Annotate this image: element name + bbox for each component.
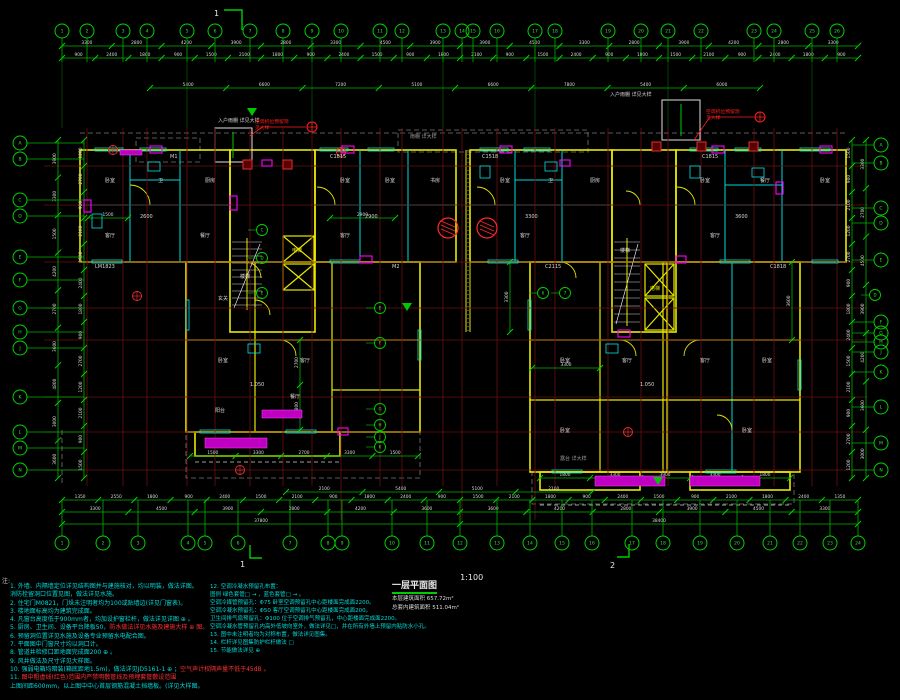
note-segment: 1. xyxy=(10,583,16,590)
grid-bubble-label: 11 xyxy=(424,541,430,547)
note-segment: 楼地面标高均为建筑完成面。 xyxy=(18,608,96,615)
note-segment: 6. xyxy=(10,633,16,640)
dim-value: 4500 xyxy=(380,40,391,46)
grid-bubble-label: 4 xyxy=(187,541,190,547)
plan-label: 客厅 xyxy=(700,357,710,364)
plan-label: C1815 xyxy=(330,154,346,160)
plan-label: 卧室 xyxy=(820,177,830,184)
grid-bubble-label: 5 xyxy=(186,29,189,35)
note-segment: 节能做法详见 ⊕ xyxy=(221,648,260,654)
note-segment: 12. xyxy=(210,584,219,590)
dim-value: 2100 xyxy=(319,486,330,492)
dim-value: 37800 xyxy=(254,518,268,524)
plan-label: 电梯 xyxy=(650,285,660,292)
annotation-text: 见大样 xyxy=(706,114,721,121)
note-segment: 平面图中门窗尺寸均以洞口计。 xyxy=(18,641,102,648)
dim-value: 4200 xyxy=(728,40,739,46)
note-segment: 风井做法及尺寸详见大样图。 xyxy=(18,658,96,665)
walls-exterior xyxy=(80,150,846,490)
plan-label: 卧室 xyxy=(560,427,570,434)
note-segment: 消防栓留洞口位置见图，做法详见水施。 xyxy=(10,591,118,598)
note-segment: 凡窗台高度低于900mm者，均加设护窗栏杆，做法详见详图 ⊕ 。 xyxy=(18,616,194,623)
note-segment: 5. xyxy=(10,624,16,631)
grid-bubble-label: 6 xyxy=(214,29,217,35)
level-triangle xyxy=(247,108,257,116)
area-line-2: 总套内建筑面积 511.04m² xyxy=(392,605,483,612)
dim-value: 2400 xyxy=(106,52,117,58)
grid-bubble-label: 14 xyxy=(527,541,533,547)
grid-bubble-label: 24 xyxy=(771,29,777,35)
dim-value: 6600 xyxy=(488,82,499,88)
note-line: 图例 绿色套管□ → ，蓝色套管□ → 。 xyxy=(210,591,540,599)
grid-bubble-label: 16 xyxy=(494,29,500,35)
grid-bubble-label: 22 xyxy=(698,29,704,35)
plan-label: 阳台 xyxy=(215,407,225,414)
window-marks xyxy=(92,148,838,473)
dim-value: 1500 xyxy=(103,212,114,218)
plan-label: 卫 xyxy=(548,178,553,184)
plan-label: 客厅 xyxy=(340,232,350,239)
plan-label: 卧室 xyxy=(105,177,115,184)
dim-value: 2400 xyxy=(770,52,781,58)
note-segment: 空调冷凝水预留孔布置： xyxy=(221,584,282,590)
plan-label: 楼梯 xyxy=(620,247,630,254)
plan-label: 3600 xyxy=(735,214,748,220)
area-line-1: 本层建筑面积 657.72m² xyxy=(392,596,483,603)
grid-bubble-label: 10 xyxy=(389,541,395,547)
note-segment: 住宅门M0821，门垛未注明者均为100或贴墙边(详见门窗表)。 xyxy=(18,600,187,607)
general-notes-right: 12.空调冷凝水预留孔布置：图例 绿色套管□ → ，蓝色套管□ → 。空调冷媒管… xyxy=(210,583,540,655)
note-segment: 8. xyxy=(10,649,16,656)
plan-label: 入户雨棚 详见大样 xyxy=(218,117,260,124)
dim-value: 3600 xyxy=(786,295,792,306)
grid-bubble-label: K xyxy=(880,370,884,376)
dim-value: 1500 xyxy=(256,494,267,500)
red-annotations: 空调机位预留洞见大样空调机位预留洞见大样 xyxy=(250,108,765,140)
dim-value: 3900 xyxy=(430,40,441,46)
plan-label: 卧室 xyxy=(560,357,570,364)
dim-value: 900 xyxy=(438,494,446,500)
dim-value: 3600 xyxy=(860,400,866,411)
drawing-title: 一层平面图 xyxy=(392,578,437,594)
grid-bubble-label: 15 xyxy=(470,29,476,35)
fixture xyxy=(148,162,160,171)
grid-bubble-label: 10 xyxy=(338,29,344,35)
plan-label: 餐厅 xyxy=(200,232,210,239)
elevator-right xyxy=(645,264,674,330)
plan-label: 电梯 xyxy=(292,247,302,254)
note-line: 11.图中粗虚线(红色)范围内严禁明敷管线及预埋套管敷设范围 xyxy=(10,674,208,682)
plan-label: 厨房 xyxy=(590,177,600,184)
grid-bubble-label: 16 xyxy=(589,541,595,547)
dim-value: 2550 xyxy=(111,494,122,500)
note-segment: 空调冷媒管预留孔：Φ75 卧室空调预留孔中心距楼面完成面2200。 xyxy=(210,600,375,606)
grid-bubble-label: 7 xyxy=(289,541,292,547)
dim-value: 3300 xyxy=(330,40,341,46)
grid-bubble-label: 12 xyxy=(399,29,405,35)
dim-value: 1500 xyxy=(670,52,681,58)
plan-label: M1 xyxy=(170,154,178,160)
grid-bubble-label: 12 xyxy=(457,541,463,547)
dim-value: 3900 xyxy=(860,303,866,314)
dim-value: 2100 xyxy=(548,486,559,492)
dim-value: 3900 xyxy=(231,40,242,46)
cad-viewport[interactable]: 1 1 2 3300280042003900280033004500390039… xyxy=(0,0,900,700)
note-segment: 强弱电箱均暗装(箱底距地1.5m)，做法详见JD5161-1 ⊕ ； xyxy=(22,666,181,673)
dim-value: 2100 xyxy=(703,52,714,58)
dim-value: 7800 xyxy=(564,82,575,88)
note-segment: 空气声计权隔声量不低于45dB 。 xyxy=(180,666,269,673)
section-label-top: 1 xyxy=(214,9,219,18)
grid-bubbles-right: ABCDEFGHJKLMN xyxy=(852,138,888,477)
plan-labels: 卧室卫厨房客厅餐厅卧室卧室书房客厅卧室卫厨房客厅卧室餐厅卧室客厅玄关卧室客厅餐厅… xyxy=(95,91,830,462)
dim-value: 1800 xyxy=(637,52,648,58)
plan-label: 楼梯 xyxy=(240,273,250,280)
dim-value: 3000 xyxy=(860,448,866,459)
grid-bubble-label: A xyxy=(18,141,22,147)
dim-value: 2800 xyxy=(280,40,291,46)
dim-value: 2700 xyxy=(52,303,58,314)
grid-bubble-label: A xyxy=(879,143,883,149)
note-segment: 11. xyxy=(10,674,20,681)
annotation-text: 空调机位预留洞 xyxy=(255,118,289,125)
fixture xyxy=(690,166,700,178)
dim-value: 1800 xyxy=(762,494,773,500)
dim-value: 4500 xyxy=(860,255,866,266)
plan-label: 雨棚 详大样 xyxy=(410,133,437,140)
grid-bubble-label: 17 xyxy=(532,29,538,35)
grid-bubble-label: 6 xyxy=(237,541,240,547)
magenta-openings xyxy=(84,146,832,486)
balcony-sill xyxy=(205,438,267,448)
dim-value: 900 xyxy=(406,52,414,58)
dim-value: 1500 xyxy=(846,355,852,366)
dim-value: 2400 xyxy=(400,494,411,500)
inline-bubble-label: D xyxy=(873,293,876,298)
note-segment: 空调冷凝水管预留孔内高外低坡向室外，做法详见□，并在所有外墙上预留内贴防水小孔。 xyxy=(210,624,430,630)
grid-bubble-label: M xyxy=(18,446,22,452)
dim-value: 1500 xyxy=(78,459,84,470)
grid-bubble-label: N xyxy=(879,468,882,474)
note-segment: 图中未注明者均为对称布置，做法详见图集。 xyxy=(221,632,331,638)
dim-value: 900 xyxy=(307,52,315,58)
grid-bubble-label: 17 xyxy=(629,541,635,547)
dim-value: 900 xyxy=(837,52,845,58)
note-segment: 2. xyxy=(10,600,16,607)
dim-value: 5400 xyxy=(395,486,406,492)
dim-value: 1200 xyxy=(846,459,852,470)
dim-value: 900 xyxy=(691,494,699,500)
balcony-sill xyxy=(262,410,302,418)
plan-label: 卧室 xyxy=(385,177,395,184)
balcony-sill xyxy=(690,476,760,486)
section-label-bottom-1: 1 xyxy=(240,560,245,569)
dim-value: 4500 xyxy=(156,506,167,512)
plan-label: 餐厅 xyxy=(760,177,770,184)
dim-value: 900 xyxy=(846,175,852,183)
grid-bubble-label: 3 xyxy=(122,29,125,35)
grid-bubble-label: G xyxy=(18,306,22,312)
dim-value: 1200 xyxy=(78,147,84,158)
grid-bubble-label: 14 xyxy=(459,29,465,35)
grid-bubble-label: 4 xyxy=(146,29,149,35)
grid-bubble-label: 21 xyxy=(767,541,773,547)
note-line: 14.栏杆详见图集防护栏杆做法 □ xyxy=(210,639,540,647)
inline-bubble-label: G xyxy=(378,407,381,412)
grid-bubble-label: E xyxy=(880,258,883,264)
grid-bubble-label: 11 xyxy=(377,29,383,35)
grid-bubble-label: 15 xyxy=(559,541,565,547)
dim-value: 4200 xyxy=(554,506,565,512)
dim-value: 1500 xyxy=(473,494,484,500)
dim-value: 900 xyxy=(78,435,84,443)
grid-bubble-label: 13 xyxy=(440,29,446,35)
fixture xyxy=(92,214,102,228)
dim-value: 4200 xyxy=(860,352,866,363)
grid-bubble-label: 19 xyxy=(605,29,611,35)
dim-value: 2700 xyxy=(299,450,310,456)
grid-bubble-label: J xyxy=(18,346,20,352)
dim-value: 2800 xyxy=(629,40,640,46)
title-block: 一层平面图 1:100 本层建筑面积 657.72m² 总套内建筑面积 511.… xyxy=(392,573,483,612)
notes-prefix: 注: xyxy=(2,576,10,585)
note-line: 空调冷凝水管预留孔内高外低坡向室外，做法详见□，并在所有外墙上预留内贴防水小孔。 xyxy=(210,623,540,631)
dim-value: 1800 xyxy=(545,494,556,500)
grid-bubble-label: 26 xyxy=(834,29,840,35)
dim-value: 1500 xyxy=(207,450,218,456)
dim-value: 4500 xyxy=(753,506,764,512)
note-segment: 预留洞位置详见水施及设备专业预留水电配合图。 xyxy=(18,633,150,640)
dim-value: 3300 xyxy=(819,506,830,512)
annotation-text: 空调机位预留洞 xyxy=(706,108,740,115)
grid-bubble-label: 1 xyxy=(61,541,64,547)
inline-bubble-label: C xyxy=(261,228,264,233)
grid-bubble-label: 19 xyxy=(697,541,703,547)
annotation-leader xyxy=(694,117,754,140)
grid-bubble-label: 22 xyxy=(797,541,803,547)
plan-label: 卧室 xyxy=(218,357,228,364)
dim-value: 1200 xyxy=(78,381,84,392)
note-segment: 防水做法详见水施及建施大样 ⊕ 图。 xyxy=(109,624,208,631)
grid-bubble-label: 8 xyxy=(327,541,330,547)
dim-value: 1800 xyxy=(139,52,150,58)
grid-bubble-label: 9 xyxy=(341,541,344,547)
note-line: 9.风井做法及尺寸详见大样图。 xyxy=(10,658,208,666)
note-segment: 厨房、卫生间、设备平台降板50， xyxy=(18,624,110,631)
note-segment: 10. xyxy=(10,666,20,673)
inline-bubble-label: F xyxy=(379,341,382,346)
general-notes-left: 1.外墙、内隔墙定位详见结构图并与建施核对，均以明装，做法详图。消防栓留洞口位置… xyxy=(10,583,208,691)
grid-bubble-label: E xyxy=(19,255,22,261)
dim-value: 4200 xyxy=(355,506,366,512)
note-line: 5.厨房、卫生间、设备平台降板50，防水做法详见水施及建施大样 ⊕ 图。 xyxy=(10,624,208,632)
dim-value: 2700 xyxy=(78,173,84,184)
door-arcs xyxy=(130,185,732,430)
plan-label: 露台 详大样 xyxy=(560,455,587,462)
note-line: 卫生间排气扇预留孔：Φ100 位于空调排气预留孔，中心距楼面完成面2200。 xyxy=(210,615,540,623)
inline-bubble-label: K xyxy=(379,445,382,450)
note-line: 上图间距600mm，以上图中中心首层钢筋混凝土挡墙板。(详见大样图。 xyxy=(10,683,208,691)
dim-value: 38400 xyxy=(652,518,666,524)
note-segment: 13. xyxy=(210,632,219,638)
inline-bubble-label: D xyxy=(260,256,263,261)
inline-bubble-label: H xyxy=(378,423,381,428)
dim-value: 1500 xyxy=(52,228,58,239)
note-segment: 空调冷凝水预留孔：Φ50 客厅空调预留孔中心距楼面完成面200。 xyxy=(210,608,371,614)
dim-value: 2400 xyxy=(617,494,628,500)
inline-bubble-label: E xyxy=(261,291,264,296)
column-mark xyxy=(283,160,292,169)
grid-bubble-label: J xyxy=(879,350,881,356)
dim-value: 1350 xyxy=(75,494,86,500)
dim-value: 2800 xyxy=(620,506,631,512)
inline-bubble-label: J xyxy=(378,435,380,440)
grid-bubble-label: 2 xyxy=(86,29,89,35)
level-triangle xyxy=(402,303,412,311)
grid-bubble-label: F xyxy=(19,278,22,284)
plan-label: 卧室 xyxy=(500,177,510,184)
note-segment: 图例 绿色套管□ → ，蓝色套管□ → 。 xyxy=(210,592,304,598)
note-segment: 图中粗虚线(红色)范围内严禁明敷管线及预埋套管敷设范围 xyxy=(22,674,177,681)
dim-value: 3300 xyxy=(253,450,264,456)
dim-value: 3900 xyxy=(222,506,233,512)
grid-bubble-label: 18 xyxy=(552,29,558,35)
dim-value: 3600 xyxy=(52,453,58,464)
plan-label: 卧室 xyxy=(340,177,350,184)
note-segment: 上图间距600mm，以上图中中心首层钢筋混凝土挡墙板。(详见大样图。 xyxy=(10,683,203,690)
grid-bubble-label: 13 xyxy=(494,541,500,547)
grid-bubble-label: K xyxy=(19,395,23,401)
grid-bubble-label: 5 xyxy=(204,541,207,547)
dim-value: 900 xyxy=(506,52,514,58)
grid-bubble-label: C xyxy=(18,198,21,204)
inline-bubble-label: 7 xyxy=(564,291,567,296)
dim-value: 2700 xyxy=(78,355,84,366)
grid-bubble-label: B xyxy=(879,161,882,167)
grid-bubble-label: 23 xyxy=(827,541,833,547)
column-mark xyxy=(697,142,706,151)
dim-value: 2400 xyxy=(571,52,582,58)
dim-value: 900 xyxy=(78,201,84,209)
plan-label: 入户雨棚 详见大样 xyxy=(610,91,652,98)
note-line: 空调冷媒管预留孔：Φ75 卧室空调预留孔中心距楼面完成面2200。 xyxy=(210,599,540,607)
note-line: 消防栓留洞口位置见图，做法详见水施。 xyxy=(10,591,208,599)
plan-label: 卧室 xyxy=(700,177,710,184)
dim-value: 1800 xyxy=(364,494,375,500)
dim-value: 2800 xyxy=(131,40,142,46)
generated-linework: 3300280042003900280033004500390039004500… xyxy=(13,24,888,550)
dim-value: 3300 xyxy=(90,506,101,512)
plan-label: 1.050 xyxy=(640,382,654,388)
grid-bubbles-bottom: 123456789101112131415161718192021222324 xyxy=(55,500,865,550)
plan-label: 厨房 xyxy=(205,177,215,184)
dim-value: 2800 xyxy=(778,40,789,46)
dim-value: 1800 xyxy=(760,472,771,478)
dim-value: 3600 xyxy=(52,341,58,352)
dim-value: 2400 xyxy=(798,494,809,500)
balcony-sill xyxy=(120,150,142,155)
dim-value: 4200 xyxy=(181,40,192,46)
grid-bubble-label: 25 xyxy=(809,29,815,35)
grid-bubble-label: H xyxy=(18,330,21,336)
column-mark xyxy=(652,142,661,151)
note-segment: 栏杆详见图集防护栏杆做法 □ xyxy=(221,640,294,646)
note-line: 12.空调冷凝水预留孔布置： xyxy=(210,583,540,591)
note-segment: 9. xyxy=(10,658,16,665)
dim-value: 1800 xyxy=(438,52,449,58)
dim-value: 1500 xyxy=(390,450,401,456)
dim-value: 5400 xyxy=(183,82,194,88)
section-label-bottom-2: 2 xyxy=(610,561,615,570)
dim-value: 1500 xyxy=(654,494,665,500)
note-line: 2.住宅门M0821，门垛未注明者均为100或贴墙边(详见门窗表)。 xyxy=(10,600,208,608)
plan-label: 玄关 xyxy=(218,295,228,302)
dim-value: 1350 xyxy=(834,494,845,500)
note-line: 15.节能做法详见 ⊕ xyxy=(210,647,540,655)
grid-bubble-label: D xyxy=(879,221,883,227)
plan-label: M2 xyxy=(392,264,400,270)
grid-bubble-label: 1 xyxy=(61,29,64,35)
grid-bubble-label: 18 xyxy=(660,541,666,547)
plan-label: 2600 xyxy=(140,214,153,220)
grid-bubble-label: 20 xyxy=(638,29,644,35)
dim-value: 900 xyxy=(74,52,82,58)
dim-value: 900 xyxy=(738,52,746,58)
grid-bubble-label: L xyxy=(19,430,22,436)
dim-value: 3900 xyxy=(479,40,490,46)
dim-value: 3300 xyxy=(860,158,866,169)
grid-bubble-label: N xyxy=(18,468,21,474)
dim-value: 3300 xyxy=(504,291,510,302)
plan-label: LM1823 xyxy=(95,264,115,270)
dim-value: 3900 xyxy=(687,506,698,512)
plan-label: 卫 xyxy=(158,178,163,184)
note-line: 8.管道井检修口距地面完成面200 ⊕ 。 xyxy=(10,649,208,657)
opening-frame xyxy=(230,196,237,210)
dim-value: 3000 xyxy=(52,416,58,427)
grid-bubble-label: M xyxy=(879,441,883,447)
plan-label: C1518 xyxy=(482,154,498,160)
dim-value: 2100 xyxy=(846,381,852,392)
grid-bubble-label: D xyxy=(18,214,22,220)
grid-bubble-label: 7 xyxy=(249,29,252,35)
column-mark xyxy=(243,160,252,169)
plan-label: 客厅 xyxy=(710,232,720,239)
dim-value: 900 xyxy=(846,409,852,417)
opening-frame xyxy=(84,200,91,212)
dim-value: 6000 xyxy=(716,82,727,88)
dim-value: 3300 xyxy=(579,40,590,46)
dim-value: 2400 xyxy=(338,52,349,58)
dim-value: 1800 xyxy=(846,303,852,314)
dim-value: 1500 xyxy=(846,147,852,158)
note-segment: 管道井检修口距地面完成面200 ⊕ 。 xyxy=(18,649,116,656)
grid-bubbles-left: ABCDEFGHJKLMN xyxy=(13,136,84,477)
grid-bubble-label: 8 xyxy=(282,29,285,35)
grid-bubble-label: 24 xyxy=(855,541,861,547)
dim-value: 1500 xyxy=(372,52,383,58)
dim-value: 6600 xyxy=(259,82,270,88)
dim-value: 3300 xyxy=(344,450,355,456)
plan-label: C1815 xyxy=(702,154,718,160)
grid-bubble-label: 23 xyxy=(751,29,757,35)
walls-interior-yellow xyxy=(186,262,800,472)
grid-bubble-label: F xyxy=(880,320,883,326)
dim-value: 2100 xyxy=(726,494,737,500)
annotation-text: 见大样 xyxy=(255,124,270,131)
grid-bubble-label: L xyxy=(880,405,883,411)
grid-bubble-label: 9 xyxy=(311,29,314,35)
